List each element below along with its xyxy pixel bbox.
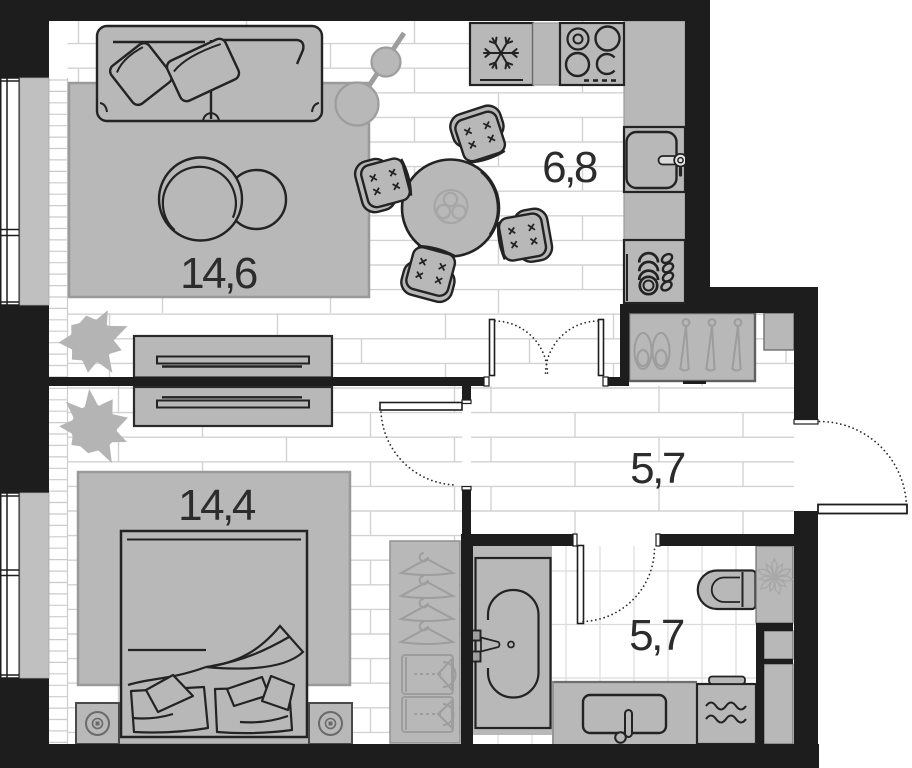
svg-text:5,7: 5,7 (629, 611, 684, 660)
svg-text:6,8: 6,8 (542, 143, 597, 192)
svg-text:14,4: 14,4 (178, 481, 256, 530)
svg-text:5,7: 5,7 (630, 444, 685, 493)
svg-text:14,6: 14,6 (180, 249, 257, 298)
